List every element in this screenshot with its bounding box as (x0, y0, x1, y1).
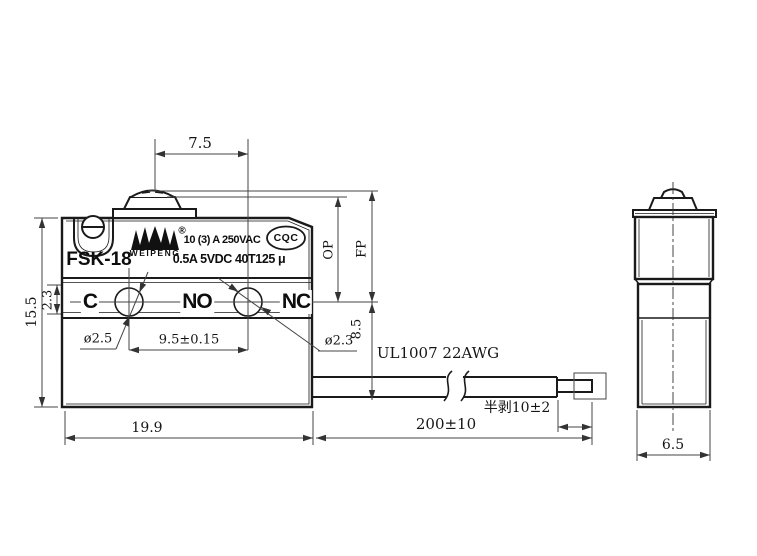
dim-hole-pitch-label: 9.5±0.15 (159, 333, 220, 348)
weipeng-logo-wings (131, 226, 179, 250)
model-number-label: FSK-18 (66, 249, 131, 271)
dim-strip-band-height-label: 2.3 (41, 290, 56, 311)
dim-body-width-label: 19.9 (131, 420, 162, 436)
dim-wire-exit-height-label: 8.5 (350, 319, 365, 340)
side-lower-section (638, 284, 710, 407)
rating-line2-label: 0.5A 5VDC 40T125 μ (173, 252, 286, 266)
dim-hole-dia-left-label: ø2.5 (84, 332, 113, 347)
screw-head (82, 216, 104, 238)
plunger-front (113, 191, 196, 219)
dim-plunger-to-hole-label: 7.5 (188, 134, 212, 152)
wire-length-label: 200±10 (416, 415, 476, 433)
fp-dimension-label: FP (355, 240, 370, 258)
wire-strip-note-label: 半剥10±2 (484, 397, 550, 417)
op-dimension-label: OP (322, 240, 337, 259)
terminal-normally-closed-label: NC (280, 290, 312, 314)
rating-line1-label: 10 (3) A 250VAC (184, 234, 261, 246)
wire (313, 371, 606, 401)
engineering-drawing-canvas: 7.5 OP FP 15.5 2.3 ø2.5 9.5±0.15 ø2.3 8.… (0, 0, 757, 556)
dim-side-width-label: 6.5 (662, 437, 684, 453)
cqc-certification-label: CQC (274, 232, 299, 244)
drawing-linework (0, 0, 757, 556)
terminal-normally-open-label: NO (180, 290, 214, 314)
dim-body-height-label: 15.5 (24, 296, 40, 327)
wire-spec-label: UL1007 22AWG (377, 344, 499, 362)
side-view-body (633, 189, 716, 407)
side-upper-section (635, 217, 713, 279)
terminal-common-label: C (81, 290, 99, 314)
